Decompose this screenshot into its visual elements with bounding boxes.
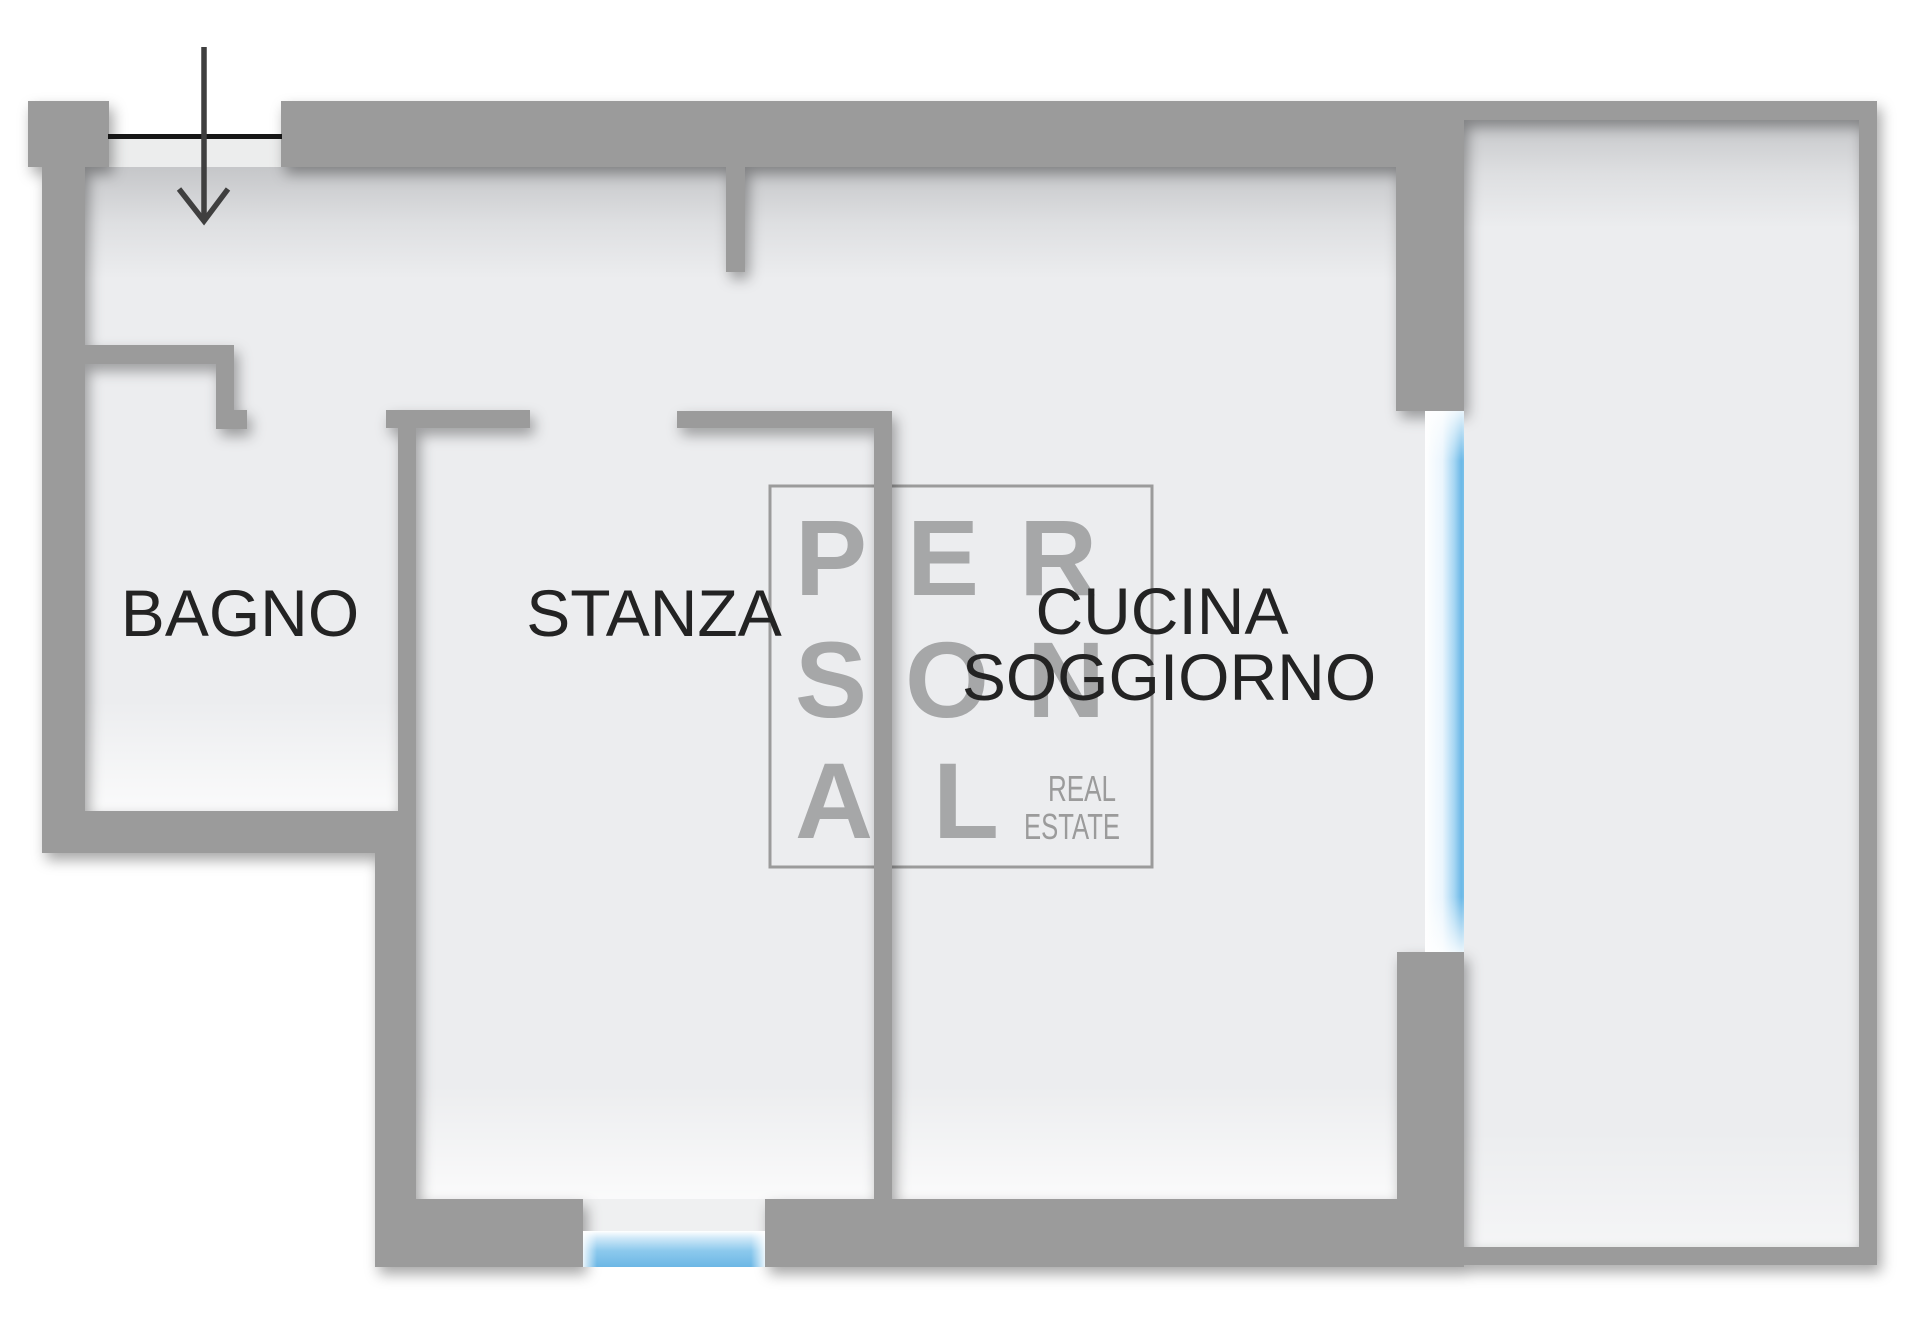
svg-text:AL: AL <box>795 740 1059 861</box>
svg-text:CUCINA: CUCINA <box>1035 574 1288 648</box>
svg-text:BAGNO: BAGNO <box>121 576 359 650</box>
svg-text:SOGGIORNO: SOGGIORNO <box>962 640 1376 714</box>
svg-text:ESTATE: ESTATE <box>1024 806 1120 847</box>
svg-text:REAL: REAL <box>1048 768 1116 809</box>
svg-text:STANZA: STANZA <box>526 576 781 650</box>
